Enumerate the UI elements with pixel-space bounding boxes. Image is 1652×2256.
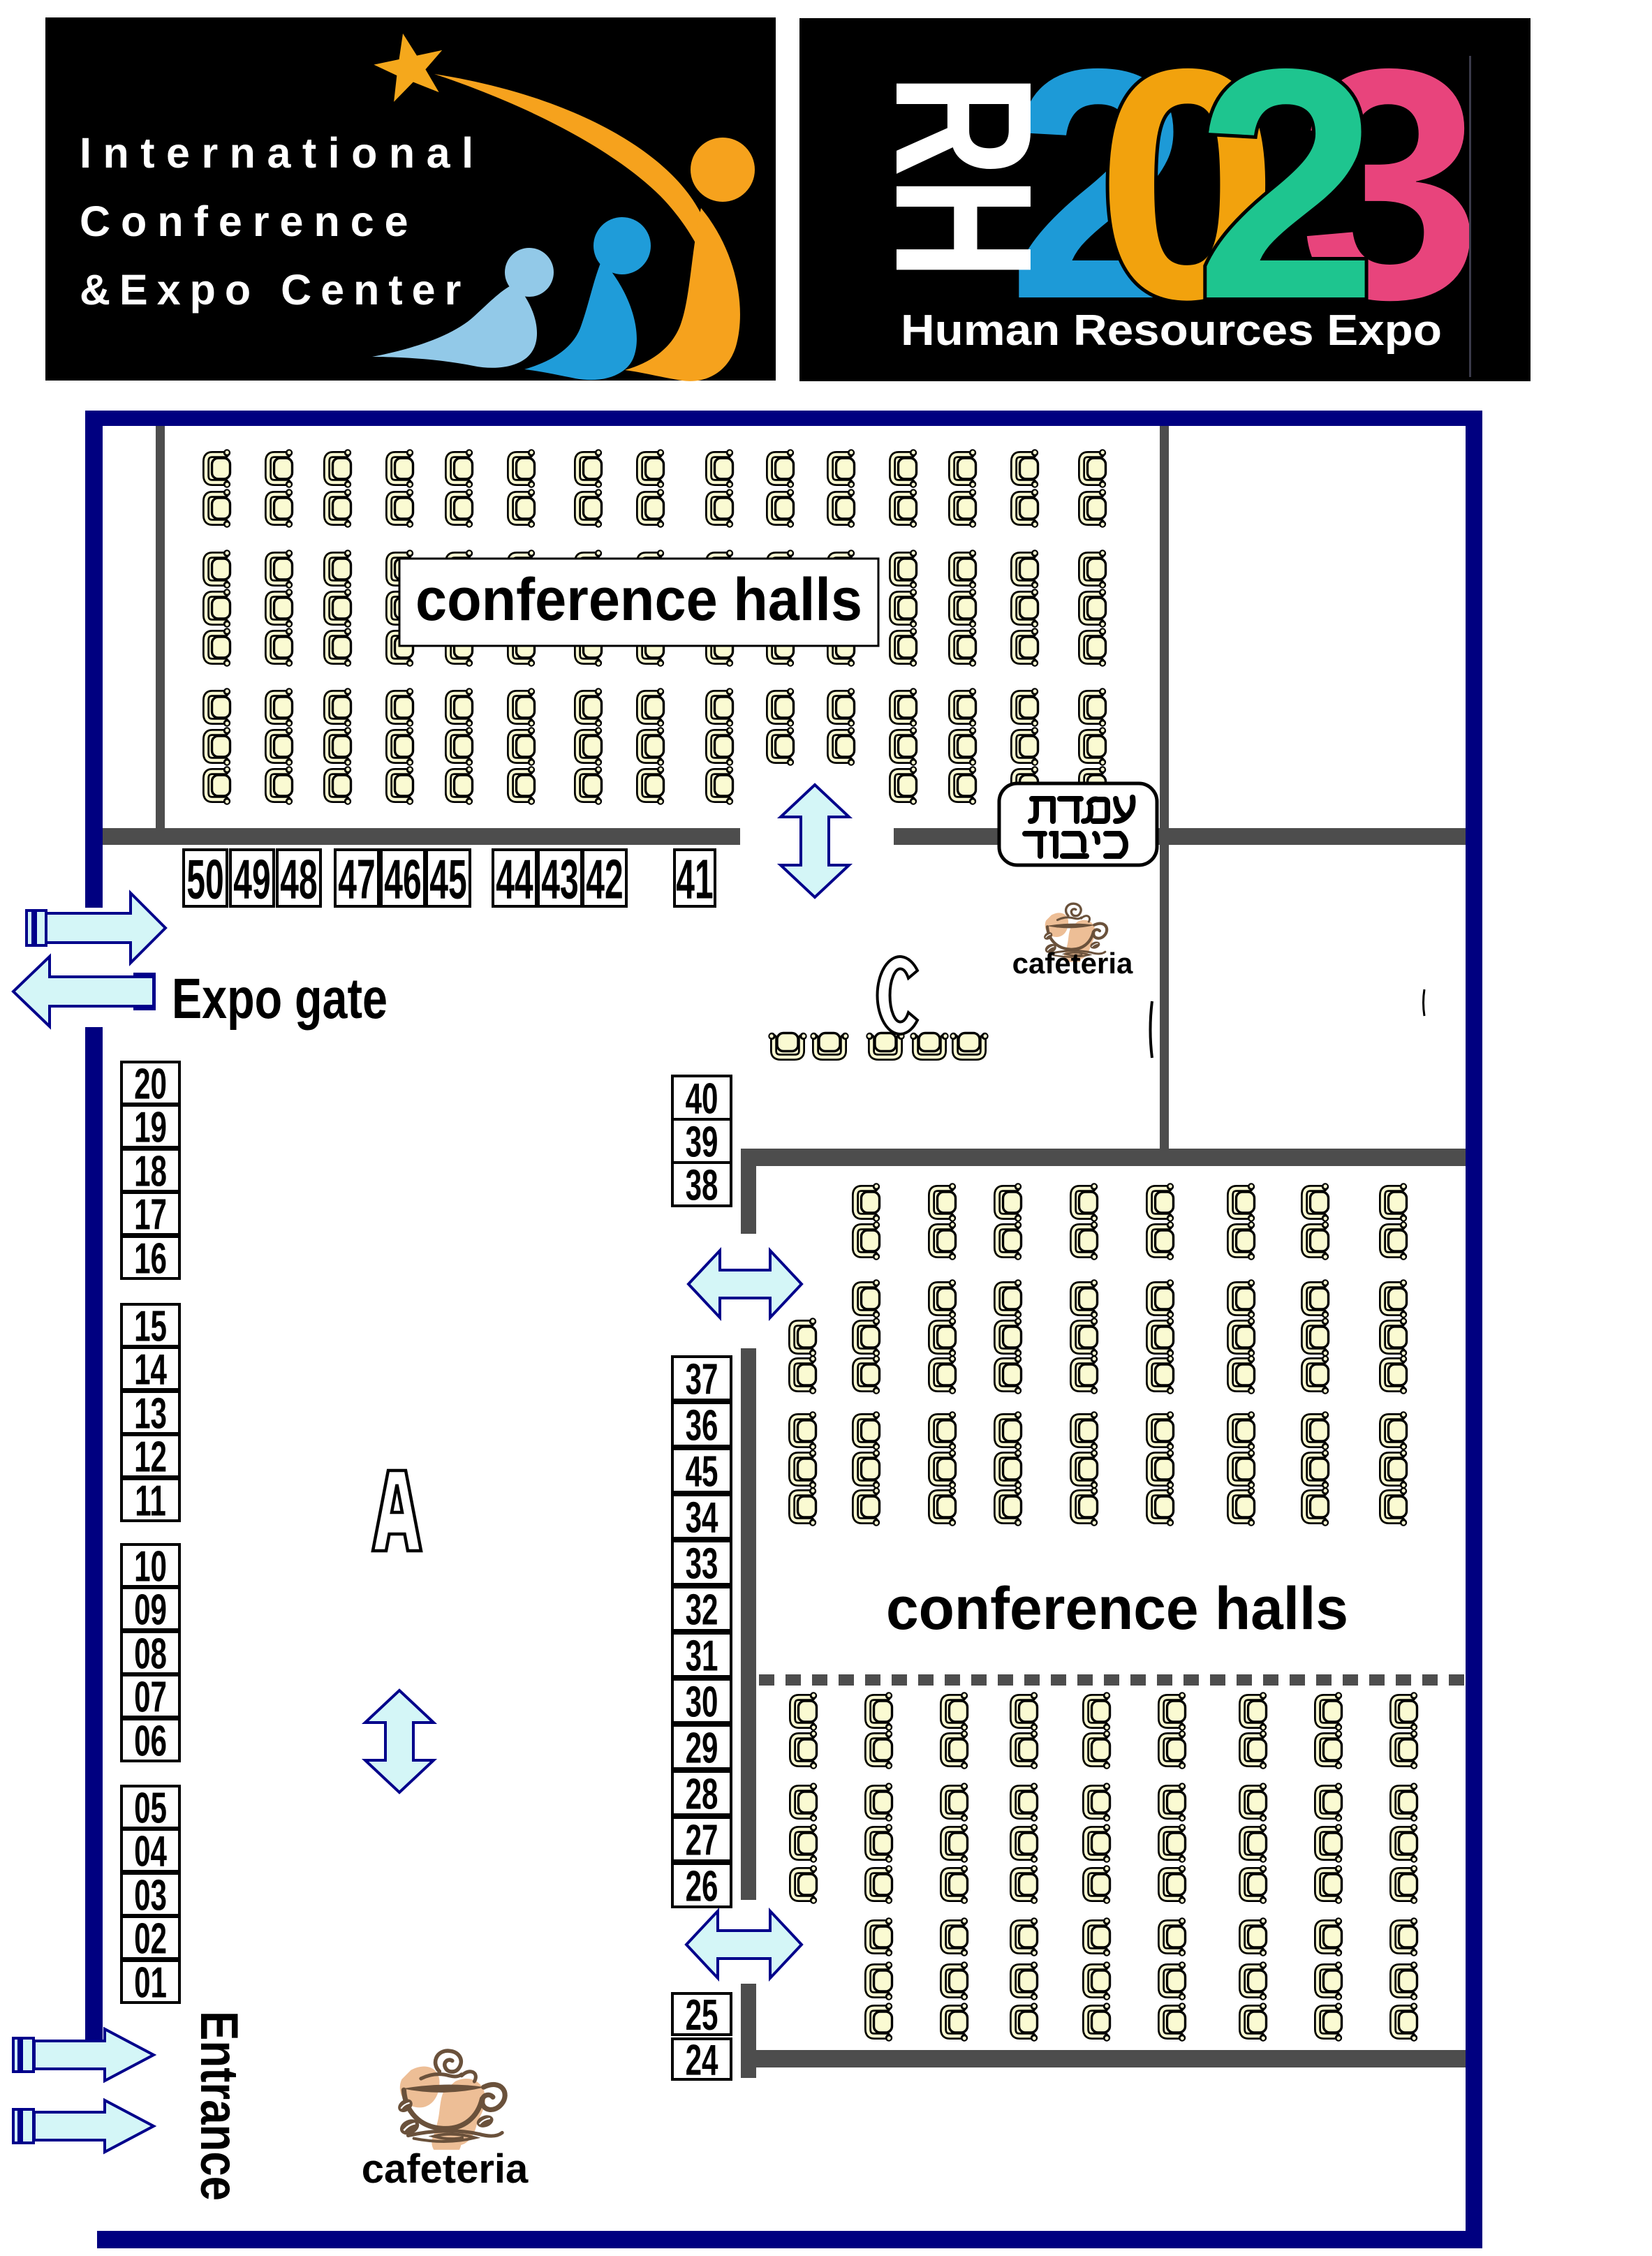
svg-text:36: 36 [686,1401,718,1450]
svg-text:50: 50 [186,848,223,910]
svg-text:49: 49 [233,848,270,910]
svg-text:44: 44 [496,848,533,910]
svg-text:10: 10 [134,1542,167,1591]
svg-text:07: 07 [134,1673,167,1721]
svg-text:48: 48 [280,848,317,910]
svg-text:05: 05 [134,1784,167,1832]
svg-text:24: 24 [686,2036,718,2084]
svg-text:27: 27 [686,1816,718,1864]
svg-text:15: 15 [134,1302,167,1350]
svg-text:40: 40 [686,1075,718,1123]
svg-text:26: 26 [686,1862,718,1910]
svg-text:29: 29 [686,1724,718,1772]
svg-text:20: 20 [134,1060,167,1108]
svg-text:13: 13 [134,1389,167,1438]
svg-text:33: 33 [686,1540,718,1588]
svg-text:Expo gate: Expo gate [172,967,388,1031]
svg-text:cafeteria: cafeteria [1012,947,1133,980]
svg-text:17: 17 [134,1190,167,1239]
svg-text:37: 37 [686,1355,718,1403]
svg-text:47: 47 [338,848,375,910]
svg-text:42: 42 [586,848,623,910]
svg-text:09: 09 [134,1586,167,1634]
svg-text:conference halls: conference halls [415,566,862,633]
svg-text:04: 04 [134,1827,167,1875]
svg-text:46: 46 [384,848,421,910]
svg-text:03: 03 [134,1871,167,1919]
svg-text:30: 30 [686,1678,718,1726]
svg-text:conference halls: conference halls [886,1575,1348,1642]
svg-text:Human Resources Expo: Human Resources Expo [901,307,1442,355]
svg-text:Conference: Conference [80,198,419,245]
svg-text:43: 43 [541,848,578,910]
svg-text:45: 45 [429,848,466,910]
svg-text:38: 38 [686,1161,718,1209]
svg-text:28: 28 [686,1770,718,1818]
svg-text:39: 39 [686,1118,718,1166]
svg-text:31: 31 [686,1632,718,1680]
svg-text:18: 18 [134,1147,167,1195]
svg-text:32: 32 [686,1586,718,1634]
svg-text:Entrance: Entrance [189,2011,249,2201]
svg-text:International: International [80,129,485,177]
svg-text:45: 45 [686,1447,718,1496]
svg-text:01: 01 [134,1959,167,2007]
svg-text:11: 11 [135,1477,166,1525]
svg-text:&Expo Center: &Expo Center [80,266,470,314]
svg-text:RH: RH [855,74,1073,279]
svg-text:14: 14 [134,1346,167,1394]
svg-text:19: 19 [134,1103,167,1151]
svg-text:02: 02 [134,1915,167,1963]
svg-text:12: 12 [134,1433,167,1481]
svg-text:41: 41 [676,848,713,910]
svg-text:cafeteria: cafeteria [362,2146,529,2192]
svg-text:34: 34 [686,1494,718,1542]
svg-text:08: 08 [134,1630,167,1678]
svg-text:16: 16 [134,1234,167,1283]
svg-text:25: 25 [686,1991,718,2040]
svg-text:06: 06 [134,1717,167,1765]
